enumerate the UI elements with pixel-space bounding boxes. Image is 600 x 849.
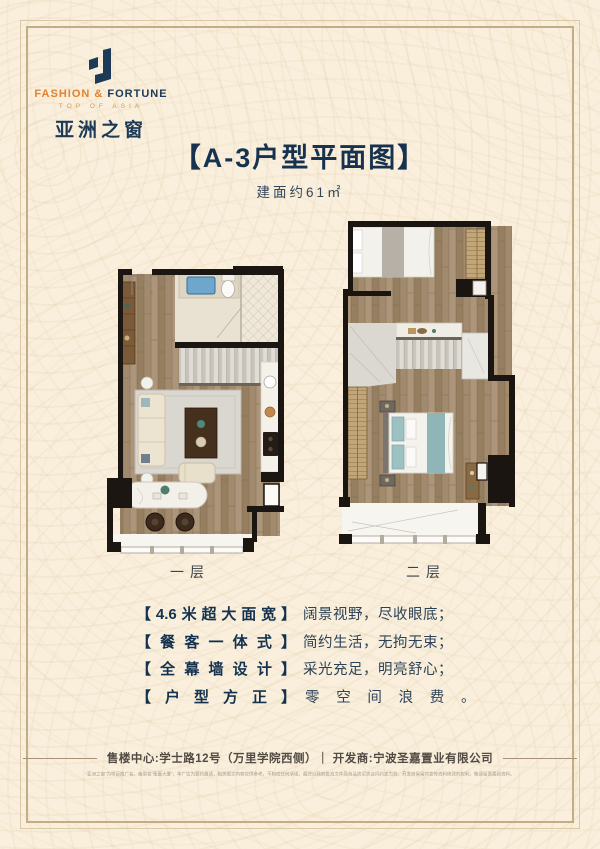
level2-label: 二层 xyxy=(330,562,522,582)
side-table xyxy=(141,377,153,389)
feature-row: 【餐客一体式】 简约生活，无拘无束； xyxy=(136,631,476,659)
brand-en-amp: & xyxy=(94,88,103,100)
shaft-box xyxy=(473,281,486,295)
toilet xyxy=(222,281,235,298)
balcony-floor xyxy=(112,534,252,548)
page-title: 【A-3户型平面图】 xyxy=(0,136,600,175)
shower-area xyxy=(241,274,280,344)
feature-tag: 【餐客一体式】 xyxy=(136,631,296,652)
feature-desc: 简约生活，无拘无束； xyxy=(303,631,453,652)
feature-tag: 【4.6米超大面宽】 xyxy=(136,603,296,624)
feature-desc: 阔景视野，尽收眼底； xyxy=(303,603,453,624)
building-logo-icon xyxy=(82,48,120,84)
footer-rule-right xyxy=(503,758,577,759)
feature-tag: 【户型方正】 xyxy=(136,686,296,707)
window-box xyxy=(477,463,487,480)
bed-runner xyxy=(427,413,445,473)
floorplan-level1 xyxy=(95,266,285,556)
feature-row: 【4.6米超大面宽】 阔景视野，尽收眼底； xyxy=(136,603,476,631)
footer-info: 售楼中心:学士路12号（万里学院西侧）｜ 开发商:宁波圣嘉置业有限公司 xyxy=(107,750,493,766)
armchair xyxy=(179,463,215,483)
sink xyxy=(187,277,215,294)
feature-row: 【户型方正】 零空间浪费。 xyxy=(136,686,476,714)
floorplan-level2 xyxy=(330,219,522,556)
brand-en-fortune: FORTUNE xyxy=(107,88,167,100)
brand-en-fashion: FASHION xyxy=(34,88,90,100)
feature-list: 【4.6米超大面宽】 阔景视野，尽收眼底； 【餐客一体式】 简约生活，无拘无束；… xyxy=(136,603,476,713)
feature-tag: 【全幕墙设计】 xyxy=(136,658,296,679)
feature-desc: 采光充足，明亮舒心； xyxy=(303,658,453,679)
footer-rule-left xyxy=(23,758,97,759)
level1-label: 一层 xyxy=(95,562,285,582)
stairs xyxy=(396,340,462,369)
stair-void xyxy=(348,323,396,389)
kitchen-sink xyxy=(264,376,276,388)
feature-row: 【全幕墙设计】 采光充足，明亮舒心； xyxy=(136,658,476,686)
footer: 售楼中心:学士路12号（万里学院西侧）｜ 开发商:宁波圣嘉置业有限公司 xyxy=(0,750,600,766)
window-box xyxy=(264,484,279,506)
cooktop xyxy=(263,432,278,456)
area-subtitle: 建面约61㎡ xyxy=(0,181,600,201)
poster: FASHION & FORTUNE TOP OF ASIA 亚洲之窗 【A-3户… xyxy=(0,0,600,849)
brand-name-en: FASHION & FORTUNE xyxy=(30,88,172,100)
brand-tagline: TOP OF ASIA xyxy=(30,103,172,110)
disclaimer-text: “亚洲之窗”为项目推广名，备案名“圣嘉大厦”，本广告为要约邀请，相关图文内容仅供… xyxy=(86,770,515,777)
coffee-table xyxy=(185,408,217,458)
brand-logo: FASHION & FORTUNE TOP OF ASIA 亚洲之窗 xyxy=(30,48,172,142)
headboard xyxy=(383,413,389,473)
feature-desc: 零空间浪费。 xyxy=(305,686,476,707)
